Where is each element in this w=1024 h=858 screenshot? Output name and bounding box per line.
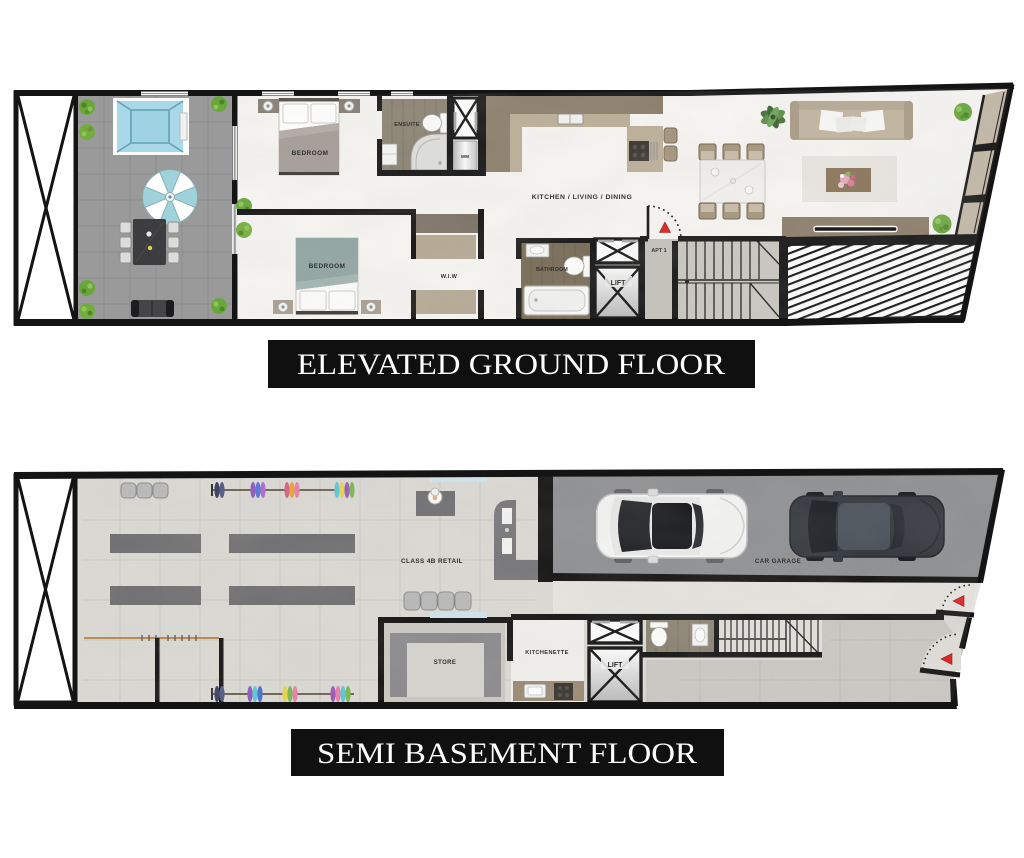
svg-text:SEMI BASEMENT FLOOR: SEMI BASEMENT FLOOR: [317, 737, 697, 770]
svg-text:ELEVATED GROUND FLOOR: ELEVATED GROUND FLOOR: [297, 348, 725, 381]
